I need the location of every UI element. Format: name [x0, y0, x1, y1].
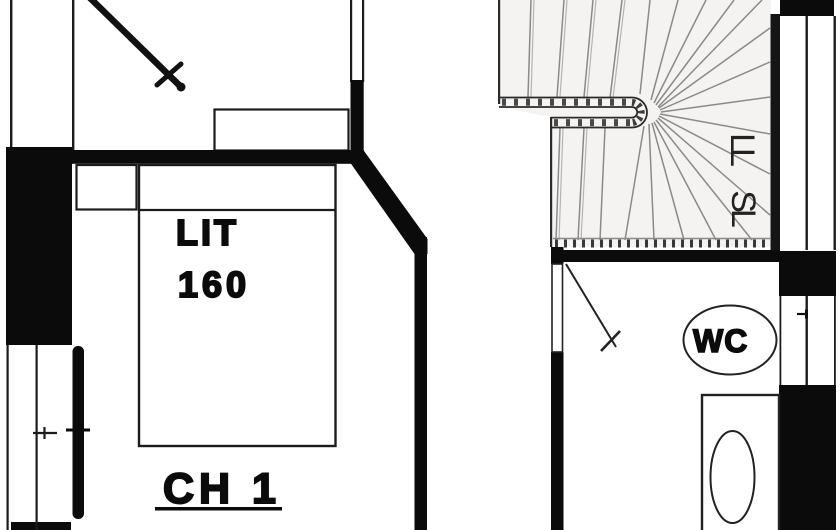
svg-text:SL: SL	[724, 190, 762, 227]
svg-text:LL: LL	[723, 133, 761, 166]
svg-text:WC: WC	[693, 323, 748, 359]
svg-text:LIT: LIT	[176, 212, 239, 253]
svg-text:160: 160	[178, 264, 250, 305]
svg-text:CH 1: CH 1	[163, 465, 281, 513]
